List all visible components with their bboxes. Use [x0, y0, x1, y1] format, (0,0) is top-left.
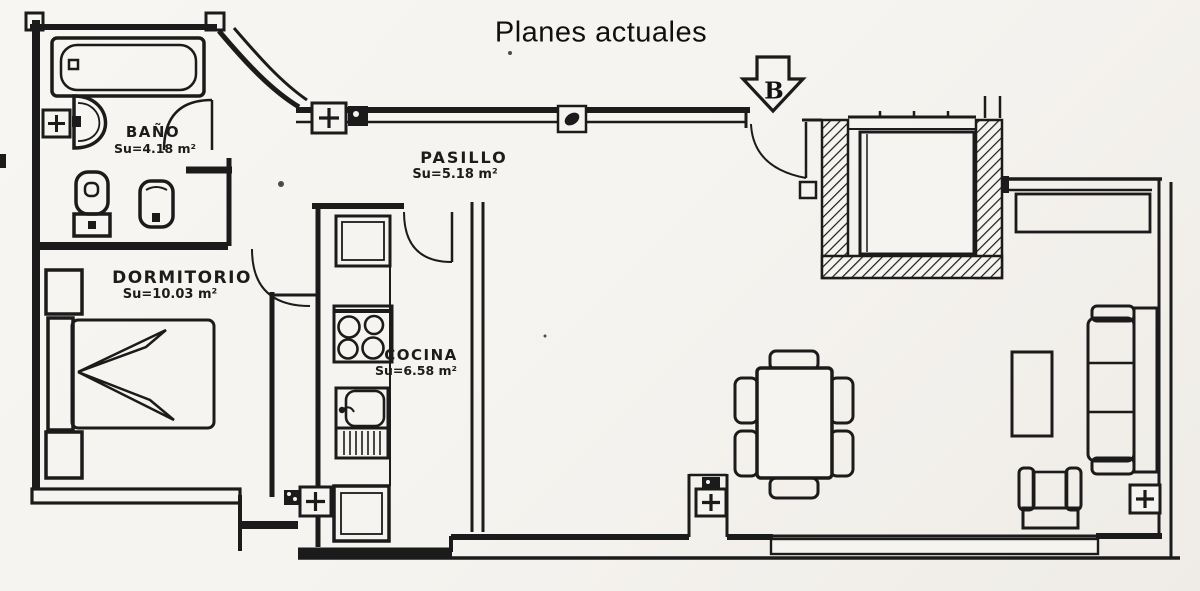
north-arrow-label: B	[764, 78, 783, 105]
washing-machine	[334, 486, 389, 541]
bidet	[140, 181, 173, 227]
entry-door	[751, 120, 822, 198]
sofa	[1088, 306, 1157, 474]
dining-chair	[735, 378, 758, 423]
nightstand-bottom	[46, 432, 82, 478]
hall-radiator	[312, 103, 368, 133]
double-bed	[48, 318, 214, 430]
washbasin	[72, 96, 106, 148]
floor-plan-drawing: BAÑO Su=4.18 m² PASILLO Su=5.18 m² DORMI…	[0, 0, 1200, 591]
coffee-table	[1012, 352, 1052, 436]
bathroom-radiator	[43, 110, 70, 137]
bedroom-door	[252, 249, 310, 306]
dining-chair	[770, 478, 818, 498]
dining-table-set	[735, 351, 853, 498]
room-label-bano: BAÑO	[126, 122, 180, 141]
doors	[164, 100, 822, 306]
hall-wall-fixture	[558, 106, 586, 132]
room-area-pasillo: Su=5.18 m²	[412, 167, 497, 182]
kitchen-sink	[336, 388, 388, 428]
patio-shaft	[822, 96, 1002, 278]
room-label-cocina: COCINA	[384, 346, 458, 364]
armchair	[1019, 468, 1081, 528]
toilet	[74, 172, 110, 236]
room-label-pasillo: PASILLO	[420, 148, 508, 167]
sideboard-cabinet	[1016, 194, 1150, 232]
nightstand-top	[46, 270, 82, 314]
room-label-dormitorio: DORMITORIO	[112, 268, 252, 288]
room-area-bano: Su=4.18 m²	[114, 141, 196, 156]
kitchen-radiator	[284, 487, 331, 516]
plan-title: Planes actuales	[495, 17, 707, 50]
living-radiator	[1130, 485, 1160, 513]
refrigerator	[336, 216, 390, 266]
dining-radiator	[689, 474, 727, 537]
dining-table	[757, 368, 832, 478]
window-band	[771, 536, 1098, 554]
room-area-dormitorio: Su=10.03 m²	[123, 287, 217, 302]
dining-chair	[735, 431, 758, 476]
bathtub	[52, 38, 204, 96]
room-area-cocina: Su=6.58 m²	[375, 363, 457, 378]
kitchen-door	[404, 212, 452, 262]
dish-drainer	[336, 428, 388, 458]
floor-plan-canvas: BAÑO Su=4.18 m² PASILLO Su=5.18 m² DORMI…	[0, 0, 1200, 591]
